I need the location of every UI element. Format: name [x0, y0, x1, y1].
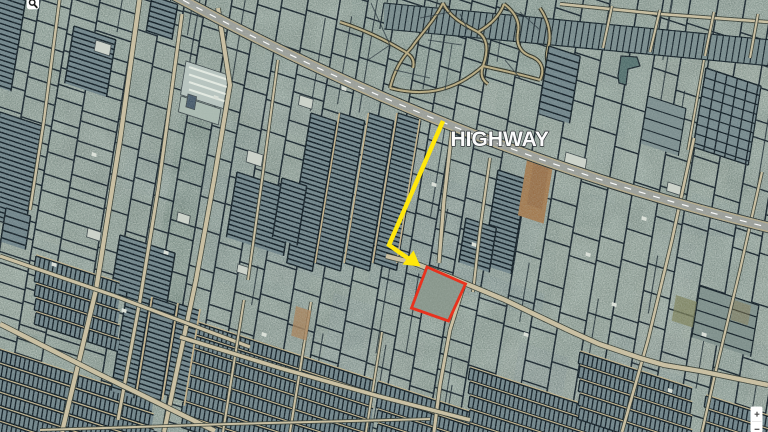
svg-text:HIGHWAY: HIGHWAY: [451, 128, 549, 151]
